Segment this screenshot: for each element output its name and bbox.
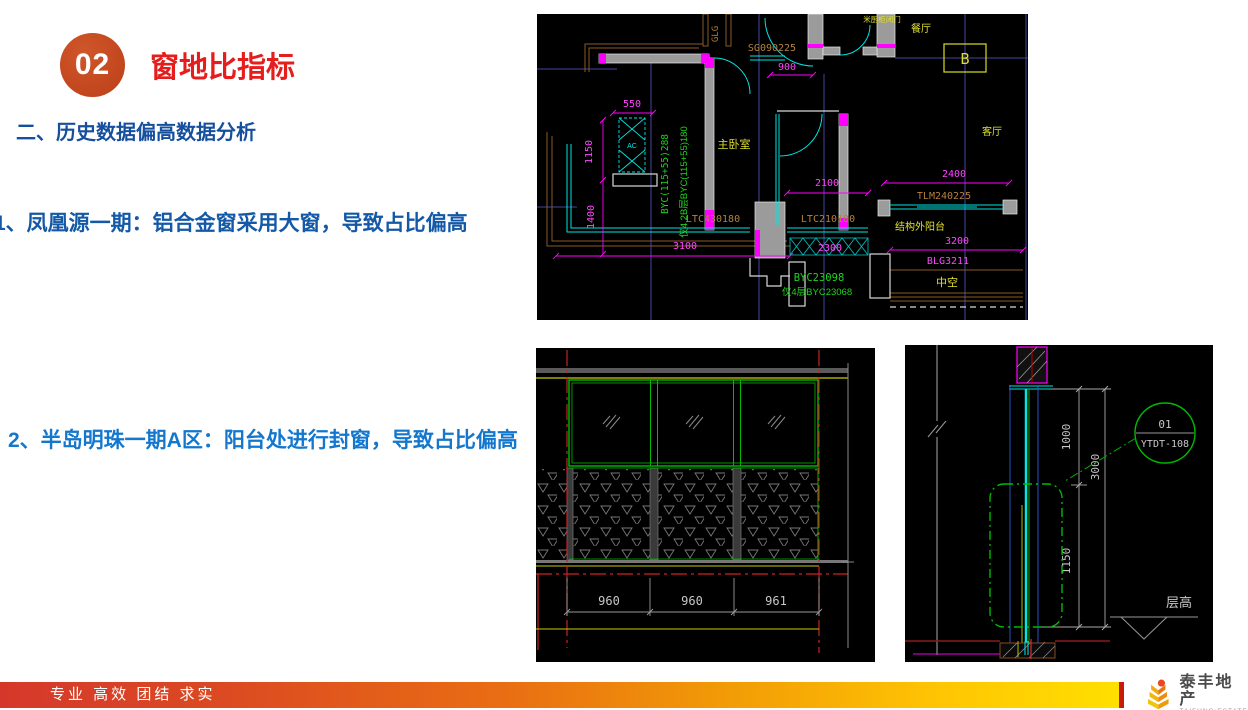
door-note: 米厨柜闭门	[863, 14, 901, 24]
code-byc2: 仅4层BYC23068	[782, 286, 852, 298]
elevation-drawing: 960 960 961	[536, 348, 875, 662]
code-sg: SG090225	[748, 43, 796, 54]
section-number-badge: 02	[60, 33, 125, 97]
cad-floor-plan: AC 550 900 11	[537, 14, 1028, 320]
section-heading: 二、历史数据偏高数据分析	[16, 116, 256, 145]
slide-title: 窗地比指标	[150, 44, 295, 86]
badge-number: 02	[75, 48, 110, 82]
section-drawing: 1000 3000 1150 01 YTDT-108 层高	[905, 345, 1213, 662]
slab-edge	[536, 368, 848, 373]
bullet-item-2: 2、半岛明珠一期A区：阳台处进行封窗，导致占比偏高	[8, 424, 518, 454]
logo-name-cn: 泰丰地产	[1180, 674, 1248, 708]
dim-3200: 3200	[945, 236, 969, 247]
code-byc-v1: BYC(115+55)288	[660, 134, 671, 214]
room-balcony: 结构外阳台	[895, 220, 945, 233]
dim-3000: 3000	[1089, 454, 1102, 481]
code-ltc1: LTC430180	[686, 214, 740, 225]
floor-plan-drawing: AC 550 900 11	[537, 14, 1028, 320]
logo-text: 泰丰地产 TAIFUNG ESTATE	[1180, 674, 1248, 710]
room-dining: 餐厅	[911, 22, 931, 35]
code-tlm: TLM240225	[917, 191, 971, 202]
taifung-logo-icon	[1144, 677, 1173, 710]
dim-1150: 1150	[584, 140, 595, 164]
dim-900: 900	[778, 62, 796, 73]
footer-bar-edge	[1119, 682, 1124, 708]
room-master-bedroom: 主卧室	[718, 137, 751, 151]
footer-slogan: 专业 高效 团结 求实	[50, 682, 216, 708]
grid-ref-label: B	[960, 50, 969, 68]
code-byc-v2: 仅4,2B层BYC(115+55)180	[678, 126, 690, 238]
dim-1400: 1400	[586, 205, 597, 229]
detail-code: YTDT-108	[1141, 439, 1189, 450]
room-void: 中空	[936, 275, 958, 289]
presentation-slide: 02 窗地比指标 二、历史数据偏高数据分析 1、凤凰源一期：铝合金窗采用大窗，导…	[0, 0, 1248, 710]
ac-label: AC	[627, 143, 637, 150]
code-ltc2: LTC210180	[801, 214, 855, 225]
room-living: 客厅	[982, 125, 1002, 138]
level-label: 层高	[1166, 595, 1192, 610]
dim-1000: 1000	[1060, 424, 1073, 451]
dim-2100: 2100	[815, 178, 839, 189]
cad-window-elevation: 960 960 961	[536, 348, 875, 662]
railing-panel	[537, 469, 818, 559]
dim-960-2: 960	[681, 594, 703, 608]
dim-3100: 3100	[673, 241, 697, 252]
code-byc1: BYC23098	[794, 272, 845, 284]
footer-bar: 专业 高效 团结 求实	[0, 682, 1124, 708]
dim-960-1: 960	[598, 594, 620, 608]
bullet-item-1: 1、凤凰源一期：铝合金窗采用大窗，导致占比偏高	[0, 207, 468, 237]
dim-550: 550	[623, 99, 641, 110]
dim-961: 961	[765, 594, 787, 608]
detail-number: 01	[1158, 418, 1171, 431]
cad-section-detail: 1000 3000 1150 01 YTDT-108 层高	[905, 345, 1213, 662]
sill-line	[536, 560, 848, 563]
code-blg: BLG3211	[927, 256, 969, 267]
dim-2300: 2300	[818, 243, 842, 254]
code-glg: GLG	[711, 26, 721, 42]
company-logo: 泰丰地产 TAIFUNG ESTATE	[1144, 674, 1248, 710]
dim-2400: 2400	[942, 169, 966, 180]
